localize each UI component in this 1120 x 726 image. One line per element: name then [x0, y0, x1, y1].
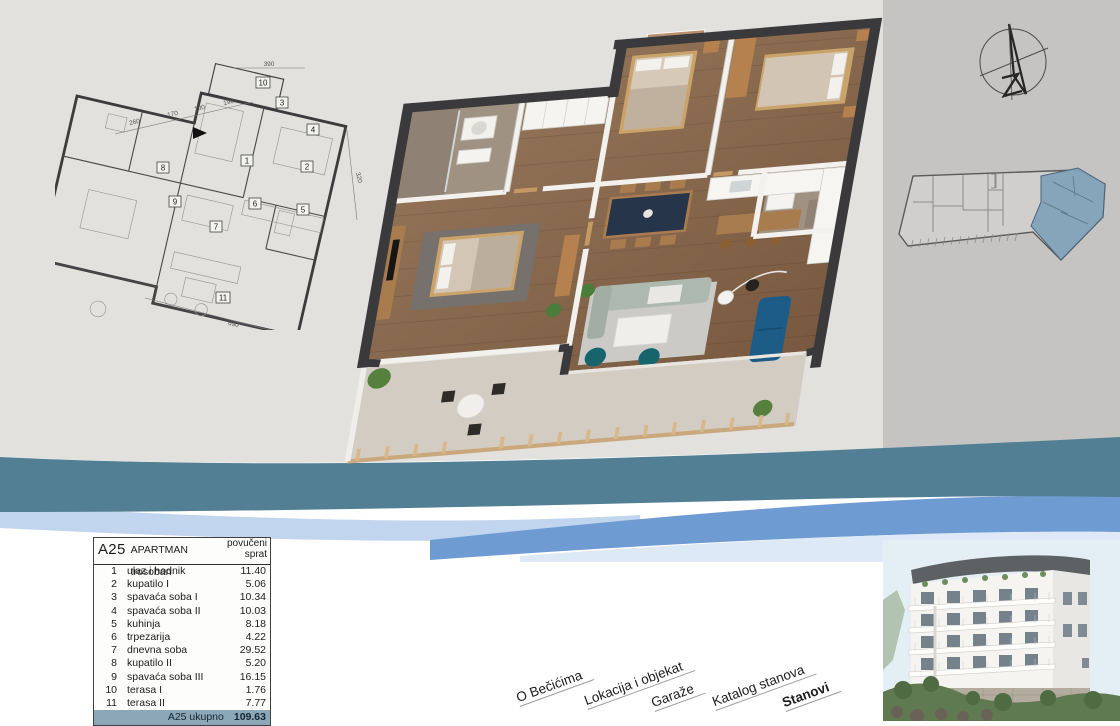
total-label: A25 ukupno	[168, 710, 224, 725]
sofa-throw	[647, 284, 683, 304]
kitchen-sink	[729, 180, 752, 193]
bed1-pillow2	[663, 56, 690, 69]
table-row: 6trpezarija4.22	[94, 631, 270, 644]
total-value: 109.63	[234, 710, 266, 725]
room-box: 7	[210, 221, 222, 232]
compass-icon	[968, 14, 1058, 109]
svg-text:10: 10	[259, 79, 268, 88]
key-plan	[893, 162, 1115, 274]
table-row: 11terasa II7.77	[94, 697, 270, 710]
building-render-photo	[883, 540, 1120, 721]
plan2d-room-numbers: 1 2 3 4 5 6 7 8 9 10 11	[157, 77, 319, 303]
floorplan-2d: 1 2 3 4 5 6 7 8 9 10 11 390 260 170 100 …	[55, 50, 375, 330]
dining-chair5	[634, 237, 651, 248]
outdoor-chair	[441, 390, 455, 402]
room-box: 11	[216, 292, 230, 303]
table-row: 7dnevna soba29.52	[94, 644, 270, 657]
plan2d-terrace1	[209, 64, 284, 110]
svg-text:9: 9	[173, 198, 178, 207]
svg-text:1: 1	[245, 157, 250, 166]
svg-text:190: 190	[223, 98, 236, 107]
outdoor-chair2	[491, 383, 505, 395]
svg-text:4: 4	[311, 126, 316, 135]
room-area-list: 1ulaz i hodnik11.40 2kupatilo I5.06 3spa…	[94, 565, 270, 710]
svg-text:320: 320	[354, 172, 363, 185]
room-box: 2	[301, 161, 313, 172]
bathroom1-vanity	[457, 148, 492, 164]
plan2d-dimension-lines	[115, 68, 357, 330]
entrance-arrow-icon	[193, 127, 207, 139]
room-box: 3	[276, 97, 288, 108]
dining-chair6	[659, 235, 676, 246]
table-row: 1ulaz i hodnik11.40	[94, 565, 270, 578]
svg-text:690: 690	[227, 320, 240, 329]
room-box: 9	[169, 196, 181, 207]
total-row: A25 ukupno 109.63	[94, 710, 270, 725]
area-table: A25 APARTMAN trosoban povučeni sprat 1ul…	[93, 537, 271, 726]
table-row: 3spavaća soba I10.34	[94, 591, 270, 604]
room-box: 8	[157, 162, 169, 173]
room-box: 1	[241, 155, 253, 166]
room-box: 10	[256, 77, 270, 88]
table-row: 9spavaća soba III16.15	[94, 671, 270, 684]
bed1-blanket	[623, 85, 688, 131]
svg-text:7: 7	[214, 223, 219, 232]
room-box: 4	[307, 124, 319, 135]
bedroom1-nightstand	[703, 40, 720, 53]
area-table-header: A25 APARTMAN trosoban povučeni sprat	[94, 538, 270, 565]
outdoor-chair3	[467, 423, 481, 435]
svg-text:3: 3	[280, 99, 285, 108]
bed1-pillow	[635, 58, 662, 71]
floor-label: povučeni sprat	[227, 539, 267, 560]
svg-text:8: 8	[161, 164, 166, 173]
room-box: 5	[297, 204, 309, 215]
svg-text:2: 2	[305, 163, 310, 172]
svg-text:6: 6	[253, 200, 258, 209]
table-row: 4spavaća soba II10.03	[94, 605, 270, 618]
svg-text:11: 11	[219, 294, 228, 303]
plan2d-dimensions: 390 260 170 100 190 320 690	[129, 61, 364, 329]
svg-text:390: 390	[264, 61, 275, 68]
coffee-table	[613, 314, 672, 347]
unit-code: A25	[98, 539, 126, 561]
table-row: 10terasa I1.76	[94, 684, 270, 697]
dining-chair4	[610, 239, 627, 250]
svg-text:5: 5	[301, 206, 306, 215]
table-row: 5kuhinja8.18	[94, 618, 270, 631]
table-row: 8kupatilo II5.20	[94, 657, 270, 670]
room-box: 6	[249, 198, 261, 209]
